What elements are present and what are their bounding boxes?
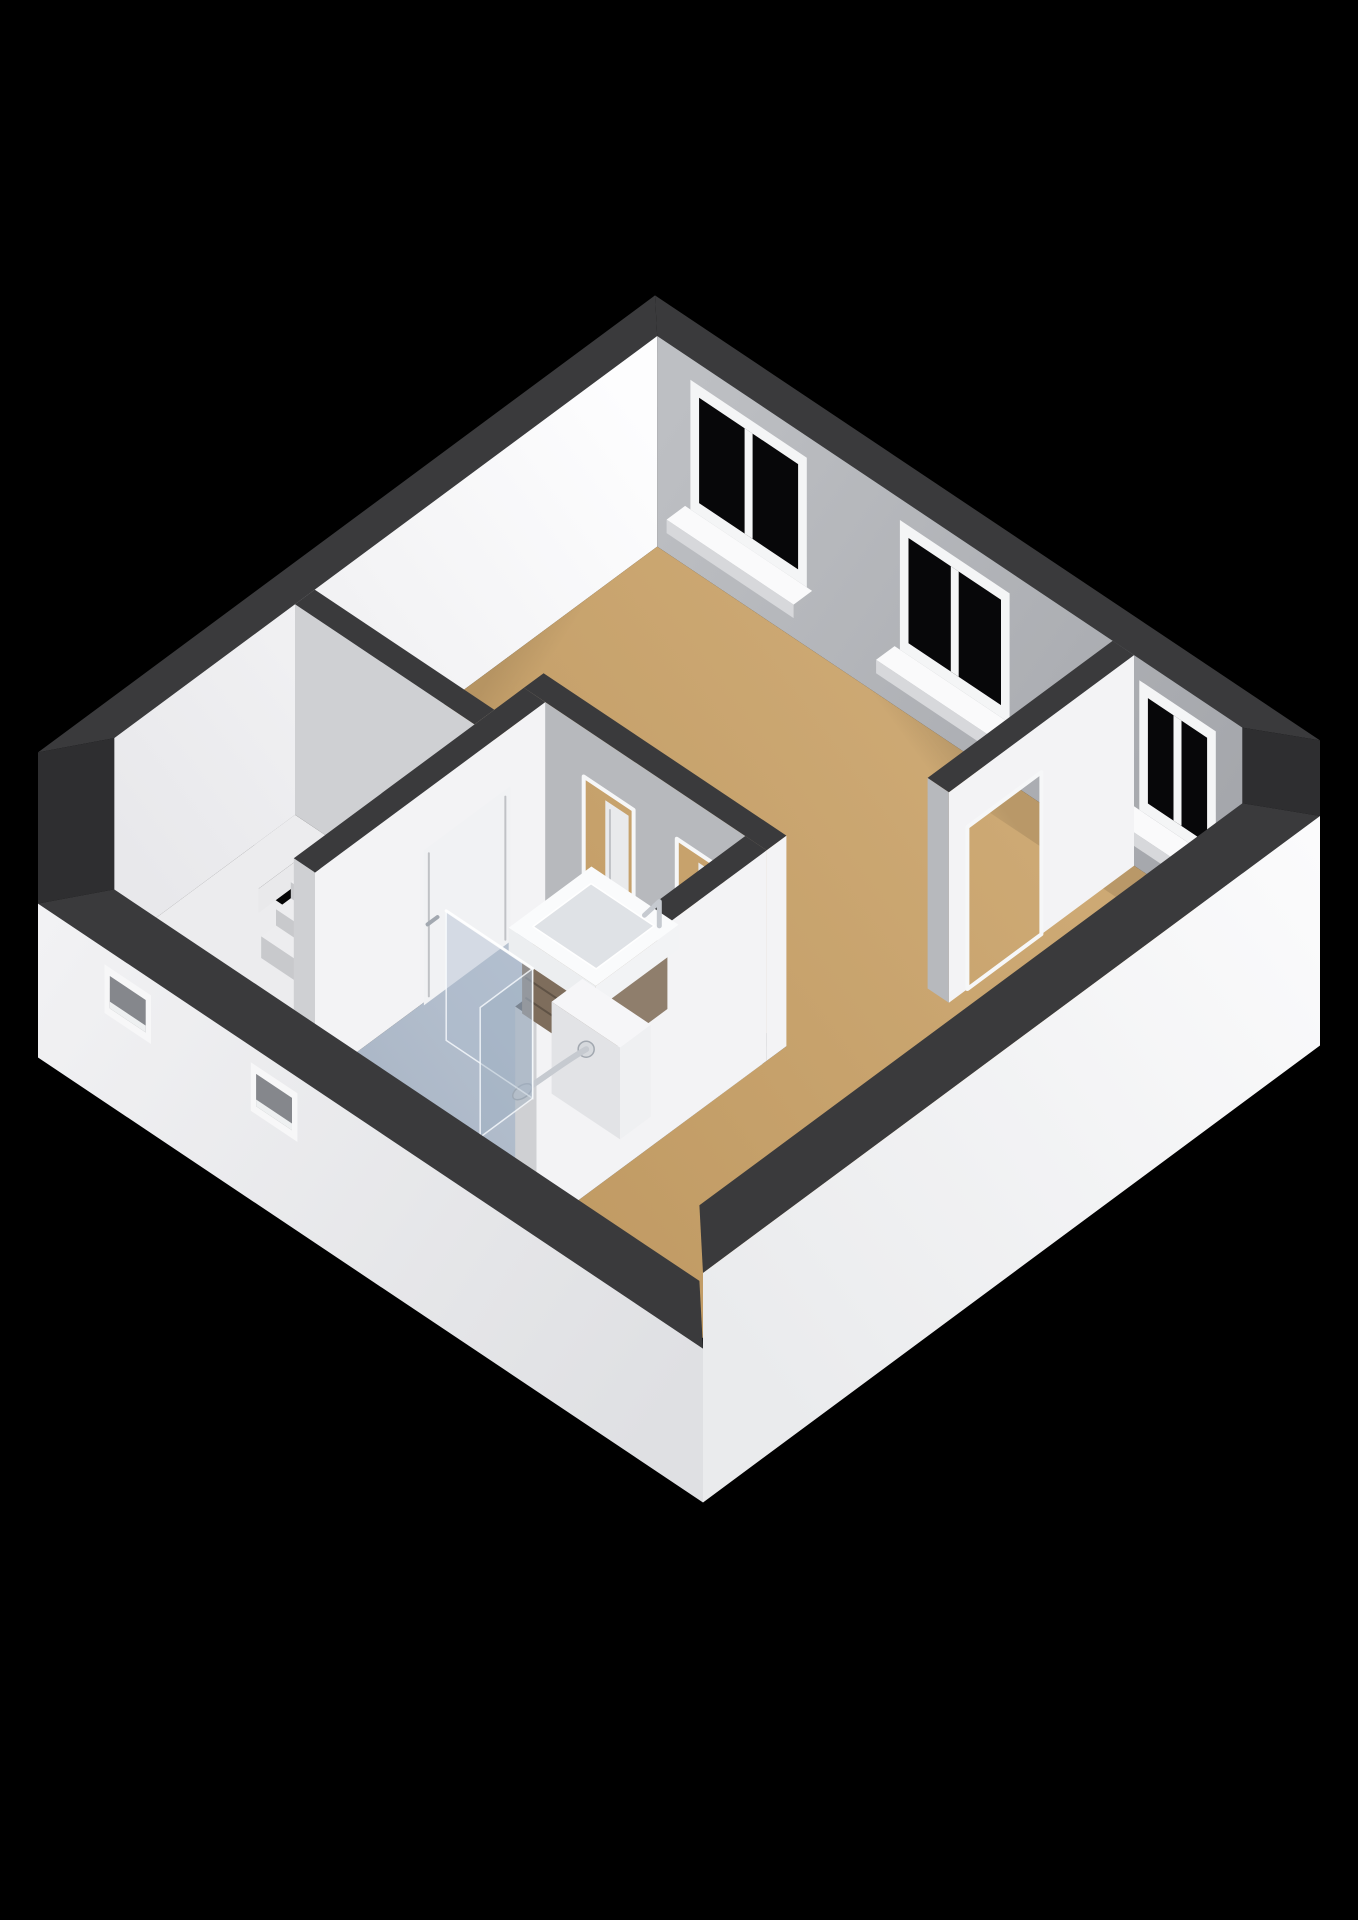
nook-partition-end-face: [928, 778, 949, 1003]
window-3-mullion: [1174, 715, 1182, 826]
floorplan-3d-view: [0, 0, 1358, 1920]
window-1-mullion: [745, 428, 753, 539]
east-corner-step-face: [1242, 728, 1320, 816]
bathroom-northeast-wall-end-face: [767, 836, 787, 1061]
floorplan-3d-render: [0, 0, 1358, 1920]
window-2-mullion: [951, 566, 959, 677]
west-corner-step-face: [38, 738, 114, 904]
